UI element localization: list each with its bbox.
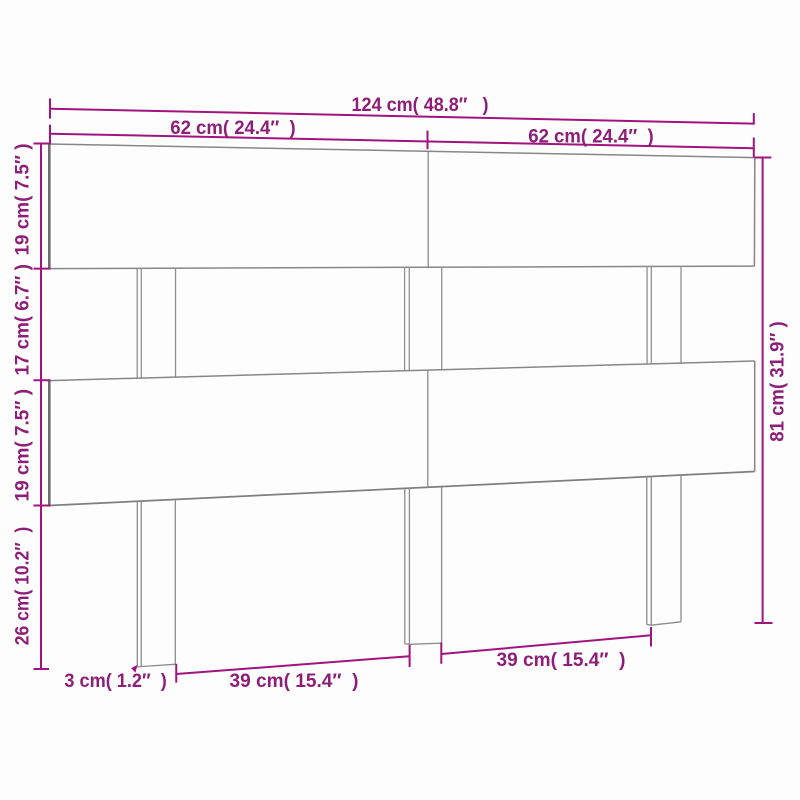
svg-text:3 cm( 1.2″ ): 3 cm( 1.2″ ) [64, 671, 167, 692]
svg-text:17 cm( 6.7″ ): 17 cm( 6.7″ ) [13, 264, 34, 376]
svg-text:62 cm( 24.4″ ): 62 cm( 24.4″ ) [170, 118, 296, 139]
svg-text:19 cm( 7.5″ ): 19 cm( 7.5″ ) [13, 144, 34, 256]
svg-text:62 cm( 24.4″ ): 62 cm( 24.4″ ) [528, 127, 654, 148]
svg-text:19 cm( 7.5″ ): 19 cm( 7.5″ ) [13, 389, 34, 502]
svg-text:124 cm( 48.8″ ): 124 cm( 48.8″ ) [352, 95, 489, 116]
svg-text:39 cm( 15.4″ ): 39 cm( 15.4″ ) [497, 650, 626, 671]
svg-text:39 cm( 15.4″ ): 39 cm( 15.4″ ) [230, 671, 359, 692]
svg-text:81 cm( 31.9″ ): 81 cm( 31.9″ ) [768, 321, 789, 442]
svg-text:26 cm( 10.2″ ): 26 cm( 10.2″ ) [13, 527, 34, 646]
